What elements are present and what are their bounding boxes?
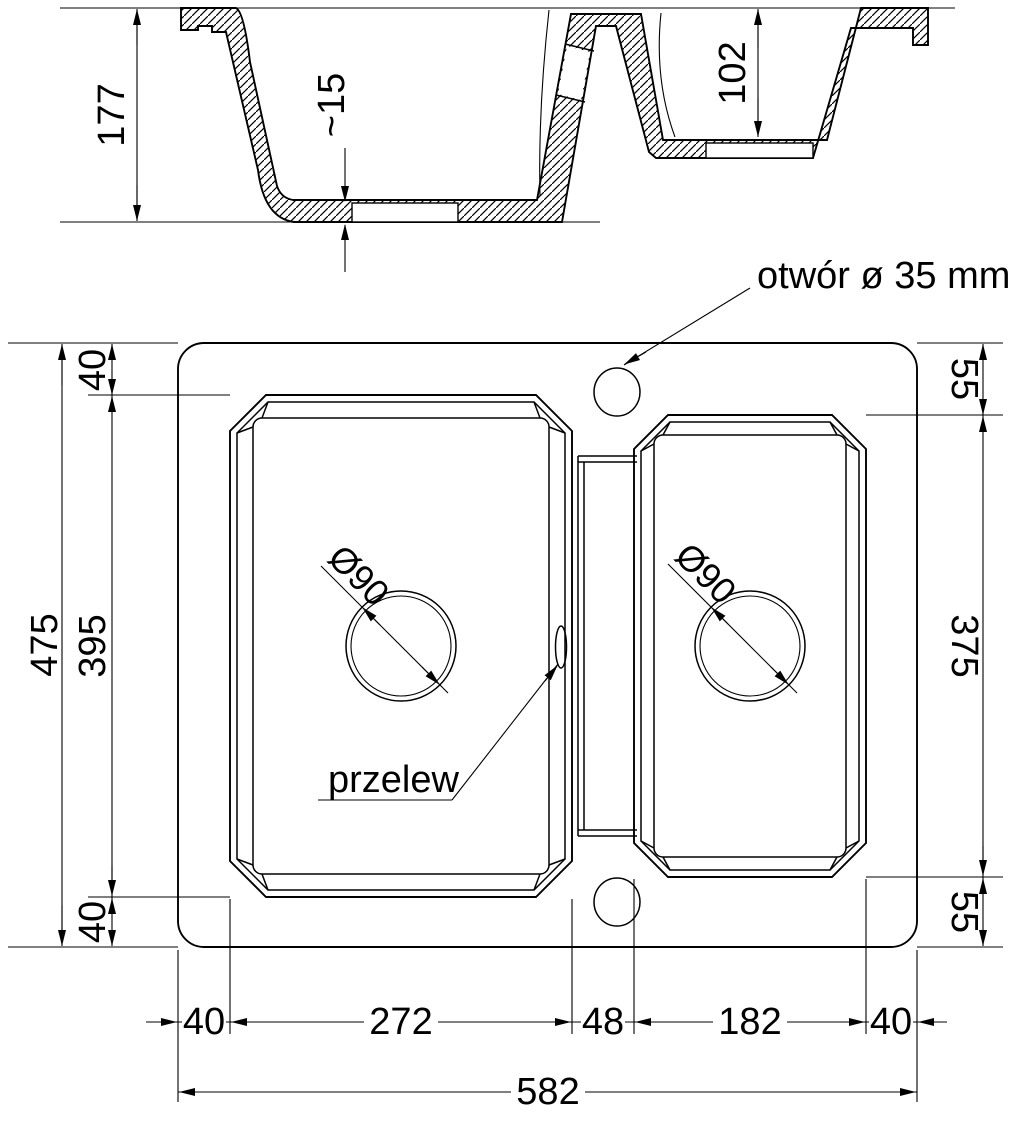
svg-text:40: 40 bbox=[72, 349, 114, 391]
tap-hole-top bbox=[594, 368, 640, 416]
svg-text:55: 55 bbox=[943, 358, 985, 400]
main-drain-dim: Ø90 bbox=[320, 537, 448, 693]
dim-section-total-depth: 177 bbox=[91, 9, 137, 221]
small-bowl-drain-recess bbox=[706, 143, 813, 158]
drawing-canvas: 177 ~15 102 bbox=[0, 0, 1011, 1131]
extension-lines bbox=[8, 343, 1003, 1102]
section-view: 177 ~15 102 bbox=[60, 8, 955, 272]
svg-text:Ø90: Ø90 bbox=[667, 535, 744, 612]
svg-text:przelew: przelew bbox=[328, 759, 459, 801]
svg-text:102: 102 bbox=[712, 41, 754, 104]
svg-text:475: 475 bbox=[24, 613, 66, 676]
svg-text:Ø90: Ø90 bbox=[320, 537, 397, 614]
technical-drawing-sink: 177 ~15 102 bbox=[0, 0, 1011, 1131]
svg-text:582: 582 bbox=[516, 1071, 579, 1113]
svg-text:55: 55 bbox=[943, 891, 985, 933]
tap-hole-callout: otwór ø 35 mm bbox=[624, 255, 1010, 365]
dim-total-width: 582 bbox=[178, 1071, 917, 1113]
svg-text:48: 48 bbox=[582, 1001, 624, 1043]
svg-text:182: 182 bbox=[718, 1001, 781, 1043]
dim-right-chain: 55 375 55 bbox=[943, 344, 985, 946]
svg-text:177: 177 bbox=[91, 83, 133, 146]
svg-text:40: 40 bbox=[870, 1001, 912, 1043]
svg-text:40: 40 bbox=[183, 1001, 225, 1043]
tap-hole-bottom bbox=[594, 878, 640, 926]
dim-bottom-chain: 40 272 48 182 40 bbox=[146, 1001, 947, 1043]
svg-text:375: 375 bbox=[943, 614, 985, 677]
dim-section-bottom-clearance: ~15 bbox=[311, 73, 353, 272]
overflow-callout: przelew bbox=[318, 664, 558, 801]
dim-left-total: 475 bbox=[24, 344, 66, 946]
small-drain-dim: Ø90 bbox=[667, 535, 797, 693]
svg-text:otwór ø 35 mm: otwór ø 35 mm bbox=[757, 255, 1010, 297]
plan-view: przelew otwór ø 35 mm Ø90 Ø90 bbox=[8, 255, 1010, 1113]
dim-left-chain: 40 395 40 bbox=[72, 344, 114, 946]
divider-ledge bbox=[578, 456, 637, 836]
sink-section-body bbox=[181, 8, 928, 222]
svg-text:40: 40 bbox=[72, 901, 114, 943]
main-bowl-drain-recess bbox=[352, 203, 458, 222]
svg-text:395: 395 bbox=[72, 614, 114, 677]
small-bowl-far-corner bbox=[659, 13, 675, 137]
svg-text:272: 272 bbox=[369, 1001, 432, 1043]
dim-small-bowl-depth: 102 bbox=[712, 9, 758, 137]
svg-text:~15: ~15 bbox=[311, 73, 353, 137]
